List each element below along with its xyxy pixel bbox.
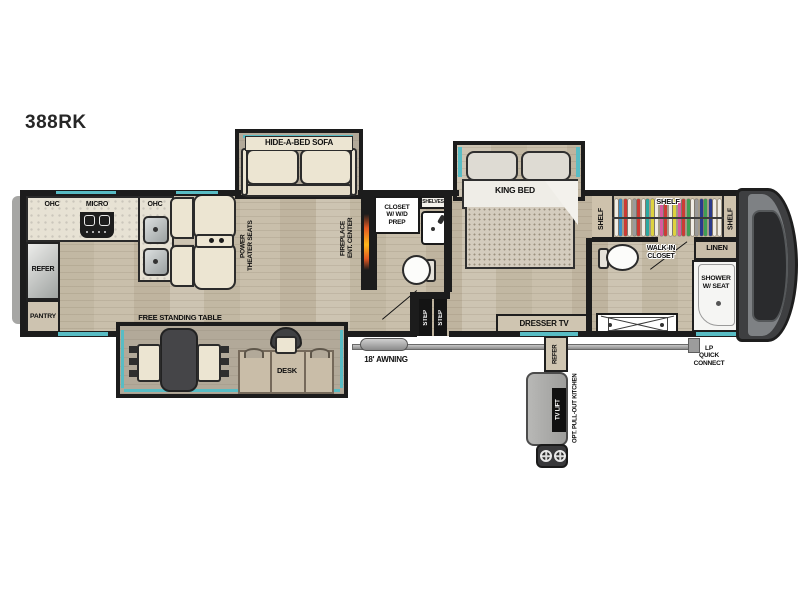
- step-2-label: STEP: [438, 310, 444, 326]
- desk-arm-right: [310, 348, 330, 358]
- pullout-kitchen-label: OPT. PULL-OUT KITCHEN: [568, 358, 584, 458]
- pullout-burner-right: [554, 450, 566, 462]
- stove-knobs: [84, 230, 110, 234]
- step-well-left: [410, 294, 419, 336]
- theater-seat-footrest-top: [170, 197, 194, 239]
- wall-closet-bottom-right: [694, 237, 740, 242]
- ohc-right-label: OHC: [137, 199, 173, 211]
- wd-prep-closet-label: CLOSET W/ W/D PREP: [375, 198, 419, 232]
- hide-a-bed-sofa-seat: [244, 184, 352, 197]
- cupholder-right: [219, 238, 224, 243]
- window-accent-top-1: [56, 191, 116, 194]
- wall-rear-end: [20, 190, 26, 337]
- shower-label: SHOWER W/ SEAT: [694, 272, 738, 294]
- lp-quick-connect-label: LP QUICK CONNECT: [686, 340, 732, 372]
- tv-lift-pivot-left: [608, 323, 612, 327]
- toilet-bowl: [402, 255, 431, 285]
- king-bed-label: KING BED: [475, 184, 555, 198]
- pantry-label: PANTRY: [25, 310, 61, 324]
- front-cap-window: [752, 210, 788, 322]
- desk-chair-seat: [275, 336, 297, 354]
- theater-seat-bottom: [193, 242, 236, 290]
- dinette-chair-right-back: [221, 346, 229, 380]
- linen-label: LINEN: [696, 241, 738, 256]
- dinette-chair-left-seat: [137, 344, 161, 382]
- dinette-chair-left-back: [129, 346, 137, 380]
- wall-bottom-mid: [345, 331, 417, 337]
- tv-lift-pivot-right: [660, 323, 664, 327]
- step-1: STEP: [419, 299, 432, 336]
- closet-rod: [612, 217, 724, 219]
- free-standing-table: [160, 328, 198, 392]
- closet-shelf-top-label: SHELF: [640, 196, 696, 208]
- ohc-left-label: OHC: [34, 199, 70, 211]
- hide-a-bed-sofa-back-right: [300, 149, 352, 185]
- theater-seats-label: POWER THEATER SEATS: [236, 200, 258, 292]
- free-standing-table-label: FREE STANDING TABLE: [134, 312, 226, 324]
- sink-drain-lower: [153, 259, 158, 264]
- sofa-armrest-left: [241, 148, 248, 196]
- desk-arm-left: [244, 348, 264, 358]
- wall-bedroom-closet: [586, 238, 592, 333]
- awning-roller: [360, 338, 408, 351]
- refer-label: REFER: [26, 263, 60, 277]
- bath-shelves-label: SHELVES: [420, 197, 446, 208]
- dresser-tv-label: DRESSER TV: [500, 317, 588, 331]
- tv-lift-label: TV LIFT: [553, 390, 565, 430]
- stove-burner-right: [99, 215, 110, 226]
- desk-label: DESK: [262, 364, 312, 378]
- king-slide-accent-left: [458, 147, 462, 177]
- stove-burner-left: [84, 215, 95, 226]
- king-bed-pillow-left: [466, 151, 518, 181]
- dinette-chair-right-seat: [197, 344, 221, 382]
- bath-sink-drain: [431, 227, 435, 231]
- pullout-burner-left: [540, 450, 552, 462]
- dinette-accent-right: [340, 330, 343, 388]
- theater-seat-footrest-bottom: [170, 245, 194, 287]
- model-number-label: 388RK: [25, 111, 105, 135]
- closet-shelf-left-label: SHELF: [594, 199, 610, 239]
- step-2: STEP: [434, 299, 447, 336]
- hide-a-bed-sofa-back-left: [246, 149, 299, 185]
- shower-drain: [716, 301, 721, 306]
- window-accent-top-2: [176, 191, 218, 194]
- sofa-armrest-right: [350, 148, 357, 196]
- king-slide-accent-right: [576, 147, 580, 177]
- step-well-top: [410, 292, 450, 299]
- dinette-accent-left: [121, 330, 124, 388]
- sink-drain-upper: [153, 227, 158, 232]
- pullout-refer-label: REFER: [546, 338, 566, 370]
- micro-label: MICRO: [78, 199, 116, 211]
- step-1-label: STEP: [423, 310, 429, 326]
- theater-seat-console: [195, 234, 234, 248]
- tv-lift-inner-frame: [608, 317, 668, 331]
- wall-bath-bedroom: [444, 196, 452, 292]
- floorplan-388rk: 388RK HIDE-A-BED SOFA KING BED DESK FREE…: [0, 0, 800, 600]
- cupholder-left: [209, 238, 214, 243]
- sofa-label: HIDE-A-BED SOFA: [245, 136, 353, 151]
- king-bed-body: [465, 207, 575, 269]
- awning-label: 18' AWNING: [354, 354, 418, 367]
- window-accent-bottom-3: [696, 332, 740, 336]
- fireplace-glow: [364, 214, 369, 270]
- fireplace-label: FIREPLACE ENT. CENTER: [334, 202, 360, 274]
- walk-in-closet-label: WALK-IN CLOSET: [634, 242, 688, 264]
- king-bed-pillow-right: [521, 151, 571, 181]
- window-accent-bottom-1: [58, 332, 108, 336]
